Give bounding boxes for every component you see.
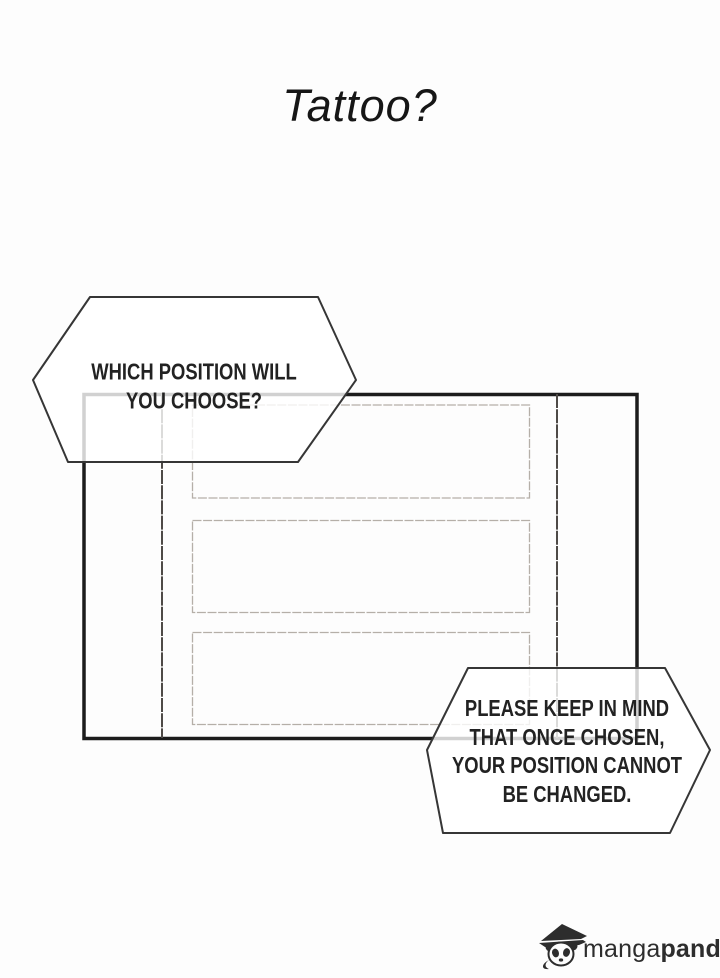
speech-line: YOUR POSITION CANNOT [452,751,682,780]
speech-bubble-warning: PLEASE KEEP IN MIND THAT ONCE CHOSEN, YO… [423,694,711,808]
panel-artwork [0,0,720,978]
mangapanda-panda-icon [537,922,589,970]
speech-line: THAT ONCE CHOSEN, [452,723,682,752]
watermark-brand: mangapanda [583,935,720,964]
speech-line: BE CHANGED. [452,780,682,809]
speech-line: PLEASE KEEP IN MIND [452,694,682,723]
manga-page: Tattoo? WHICH POSITION WILL YOU CHOOSE? … [0,0,720,978]
speech-line: WHICH POSITION WILL [91,358,296,387]
watermark-brand-bold: panda [660,935,720,963]
speech-bubble-question: WHICH POSITION WILL YOU CHOOSE? [66,358,323,415]
speech-bubble-warning-text: PLEASE KEEP IN MIND THAT ONCE CHOSEN, YO… [452,694,682,808]
watermark-brand-light: manga [583,935,660,963]
speech-bubble-question-text: WHICH POSITION WILL YOU CHOOSE? [91,358,296,415]
signboard-slot-2 [193,521,530,613]
watermark: mangapanda [537,922,720,970]
speech-line: YOU CHOOSE? [91,386,296,415]
page-title: Tattoo? [0,80,720,132]
